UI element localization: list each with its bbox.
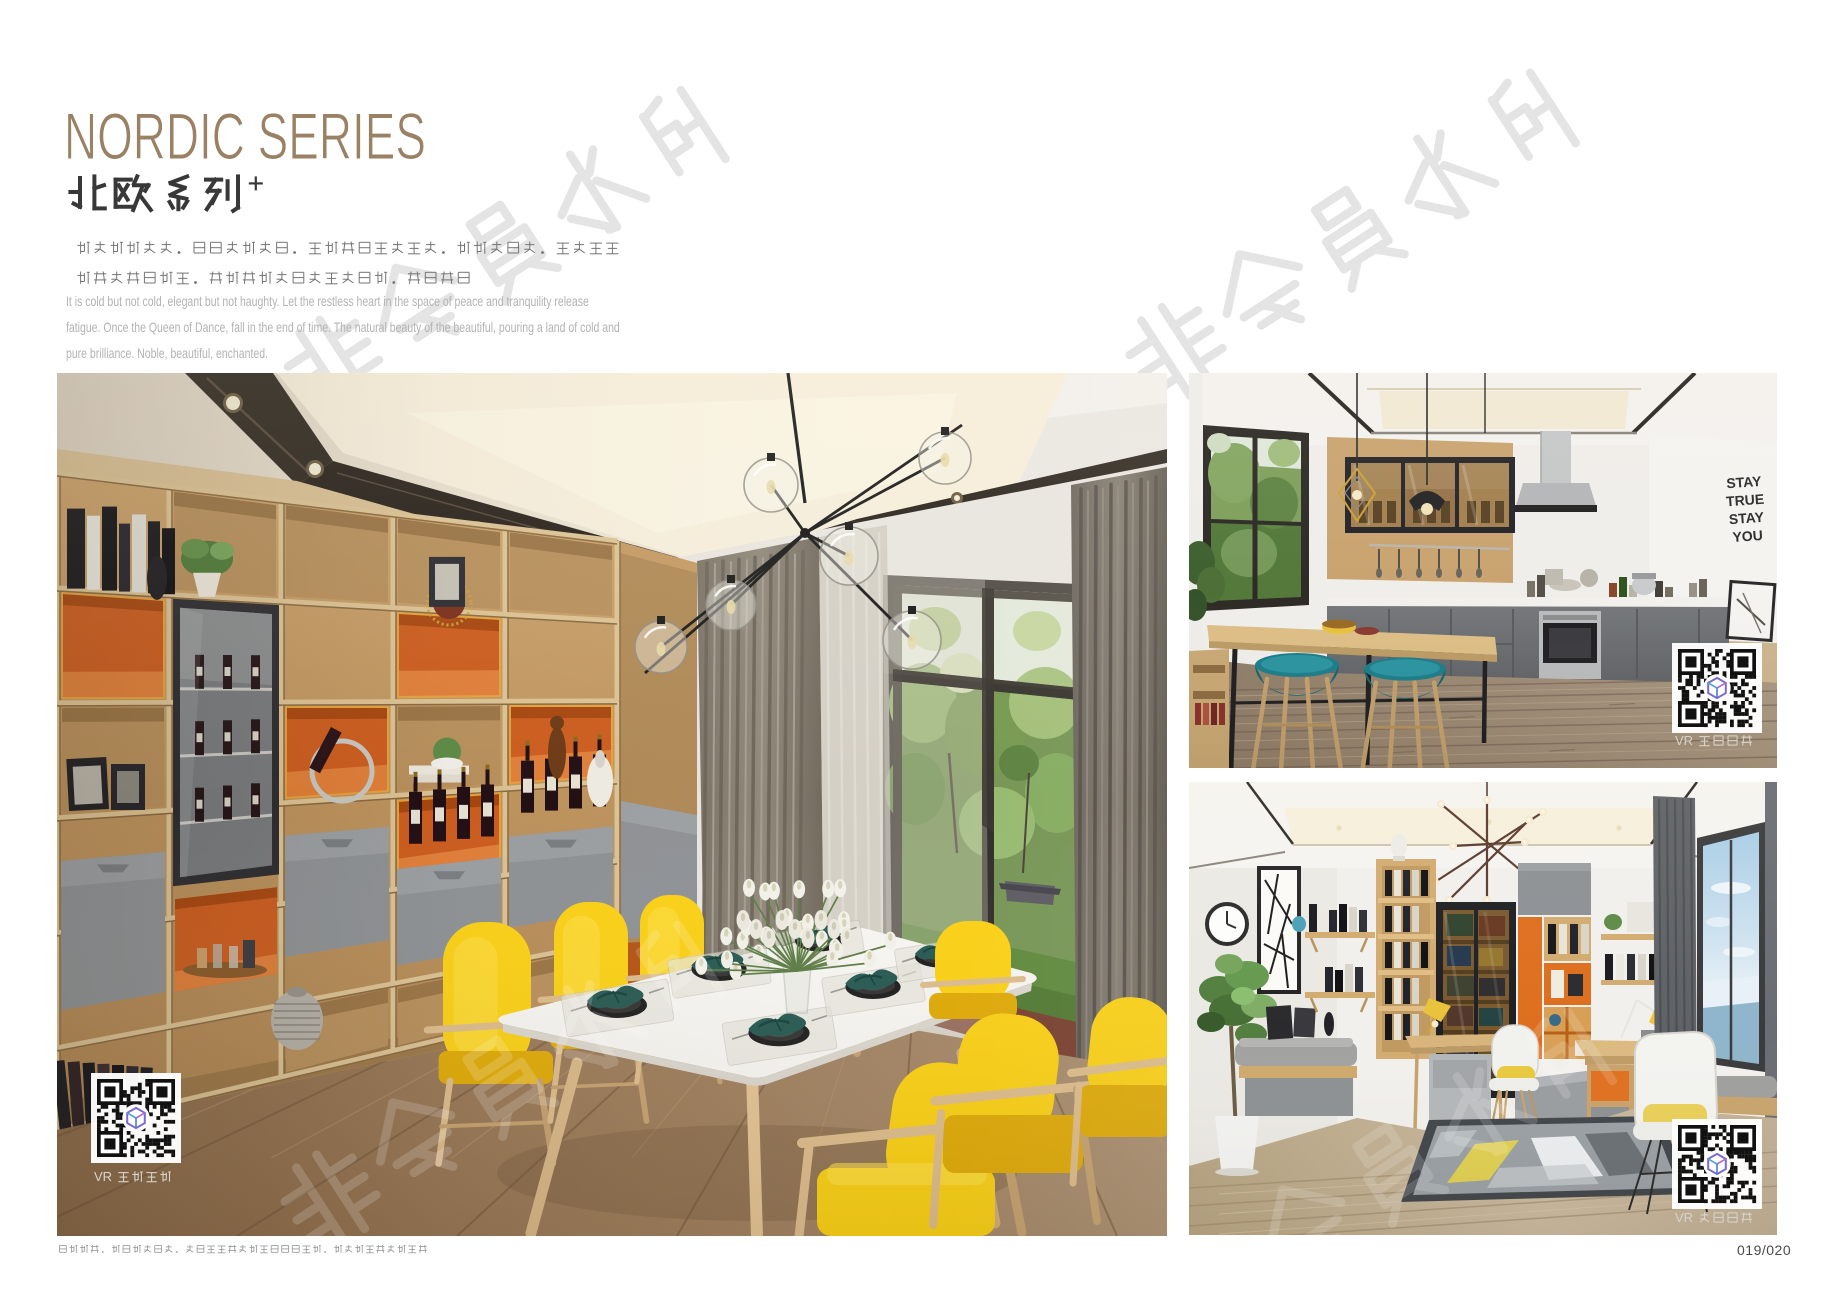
svg-text:VR: VR bbox=[1675, 733, 1693, 748]
svg-text:VR: VR bbox=[1675, 1210, 1693, 1225]
